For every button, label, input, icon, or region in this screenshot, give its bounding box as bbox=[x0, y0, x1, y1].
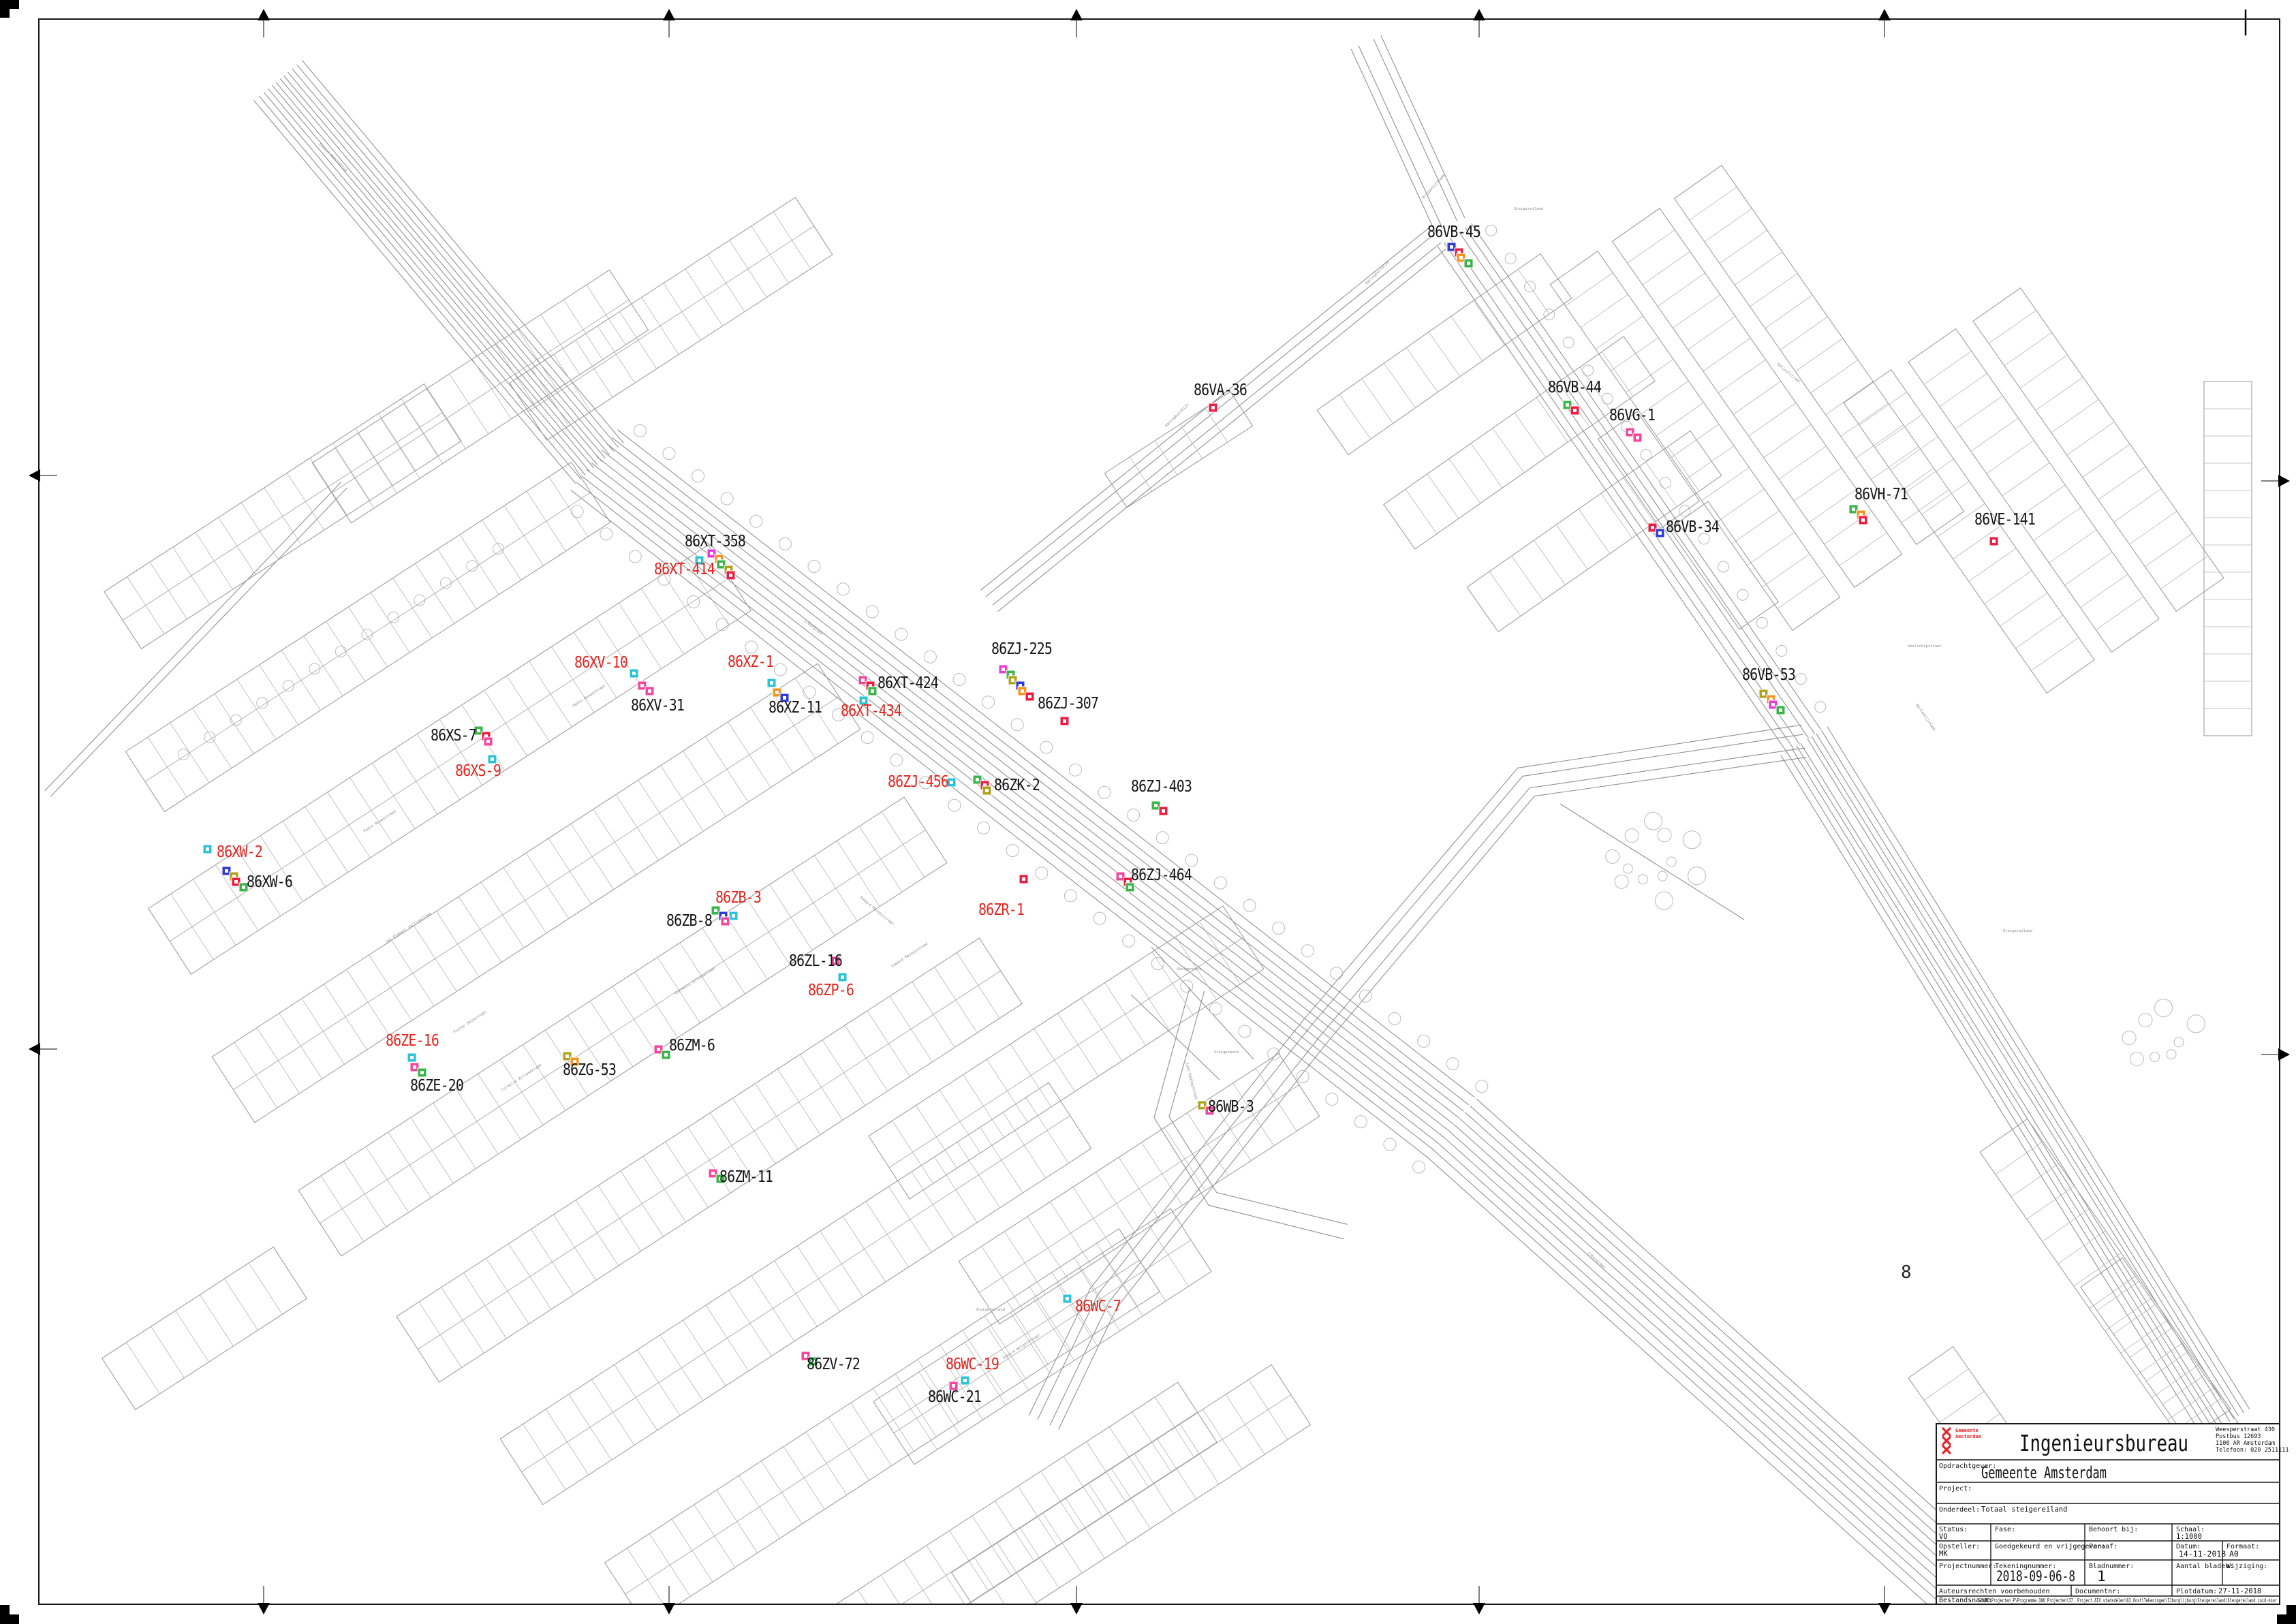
title-block-company: Ingenieursbureau bbox=[2019, 1430, 2188, 1456]
map-canvas: Enneus HeermabrugIJburglaanIJburglaanHar… bbox=[0, 0, 2296, 1624]
inspection-label: 86VB-34 bbox=[1666, 518, 1719, 536]
drawing-sheet: Enneus HeermabrugIJburglaanIJburglaanHar… bbox=[0, 0, 2296, 1624]
marker-square-icon bbox=[838, 973, 847, 982]
formaat-value: A0 bbox=[2229, 1549, 2239, 1559]
marker-square-icon bbox=[1633, 433, 1642, 442]
street-name: Steigereiland bbox=[1514, 207, 1543, 211]
inspection-label: 86XW-6 bbox=[247, 873, 292, 891]
address-line-3: 1100 AR Amsterdam bbox=[2216, 1440, 2275, 1447]
marker-square-icon bbox=[1209, 403, 1217, 412]
marker-square-icon bbox=[1656, 529, 1664, 537]
inspection-label: 86WC-19 bbox=[946, 1356, 999, 1373]
onderdeel-label: Onderdeel: bbox=[1939, 1506, 1980, 1514]
marker-square-icon bbox=[1063, 1294, 1072, 1303]
plotdatum-value: 27-11-2018 bbox=[2218, 1587, 2261, 1595]
inspection-label: 86ZJ-456 bbox=[888, 773, 948, 791]
marker-square-icon bbox=[1570, 406, 1579, 415]
marker-square-icon bbox=[645, 687, 654, 696]
datum-value: 14-11-2018 bbox=[2179, 1549, 2226, 1559]
documentnr-label: Documentnr: bbox=[2075, 1588, 2120, 1595]
street-name: Steigereiland bbox=[976, 1308, 1005, 1312]
marker-square-icon bbox=[767, 678, 776, 687]
inspection-label: 86XT-434 bbox=[841, 702, 901, 720]
status-value: VO bbox=[1939, 1533, 1948, 1541]
inspection-label: 86ZE-20 bbox=[410, 1077, 463, 1095]
projectnummer-label: Projectnummer: bbox=[1939, 1563, 1996, 1570]
marker-square-icon bbox=[1859, 516, 1867, 525]
address-line-2: Postbus 12693 bbox=[2216, 1433, 2261, 1440]
onderdeel-value: Totaal steigereiland bbox=[1981, 1505, 2067, 1514]
inspection-label: 86XT-358 bbox=[685, 533, 745, 550]
marker-square-icon bbox=[1464, 259, 1473, 268]
inspection-label: 86XV-10 bbox=[574, 654, 627, 672]
behoort-bij-label: Behoort bij: bbox=[2089, 1526, 2138, 1533]
marker-square-icon bbox=[961, 1376, 969, 1385]
marker-square-icon bbox=[726, 571, 735, 580]
inspection-label: 86WB-3 bbox=[1208, 1098, 1254, 1116]
marker-square-icon bbox=[418, 1068, 426, 1077]
paraaf-label: Paraaf: bbox=[2089, 1543, 2117, 1550]
wijziging-label: Wijziging: bbox=[2227, 1563, 2267, 1570]
inspection-label: 86ZJ-225 bbox=[991, 640, 1052, 658]
inspection-label: 86VB-45 bbox=[1427, 223, 1480, 241]
inspection-label: 86WC-7 bbox=[1075, 1298, 1121, 1315]
marker-square-icon bbox=[1060, 717, 1069, 725]
tekeningnummer-value: 2018-09-06-8 bbox=[1996, 1568, 2075, 1584]
opdrachtgever-value: Gemeente Amsterdam bbox=[1981, 1463, 2107, 1482]
street-name: Steigereiland bbox=[2003, 929, 2032, 933]
street-name: Smalschipstraat bbox=[1908, 644, 1942, 649]
title-block: Gemeente Amsterdam Ingenieursbureau Wees… bbox=[1936, 1424, 2289, 1604]
inspection-label: 86ZB-3 bbox=[715, 889, 761, 907]
inspection-label: 86ZK-2 bbox=[994, 777, 1040, 794]
inspection-label: 86XS-7 bbox=[431, 727, 476, 745]
inspection-label: 86ZM-6 bbox=[669, 1037, 715, 1055]
opsteller-value: MK bbox=[1939, 1550, 1948, 1558]
inspection-label: 86VH-71 bbox=[1855, 486, 1908, 503]
marker-square-icon bbox=[729, 911, 738, 920]
inspection-label: 86ZL-16 bbox=[789, 952, 842, 970]
auteursrechten-text: Auteursrechten voorbehouden bbox=[1939, 1588, 2050, 1595]
inspection-label: 86XT-424 bbox=[878, 674, 938, 692]
inspection-label: 86XS-9 bbox=[455, 762, 501, 780]
bladnummer-label: Bladnummer: bbox=[2089, 1563, 2134, 1570]
fase-label: Fase: bbox=[1995, 1526, 2015, 1533]
logo-text-line1: Gemeente bbox=[1955, 1428, 1979, 1433]
inspection-label: 86ZE-16 bbox=[386, 1032, 439, 1050]
inspection-label: 86ZJ-464 bbox=[1131, 866, 1192, 884]
marker-square-icon bbox=[1989, 537, 1998, 546]
schaal-value: 1:1000 bbox=[2176, 1533, 2202, 1541]
inspection-label: 86XT-414 bbox=[654, 561, 715, 578]
inspection-label: 86ZG-53 bbox=[563, 1061, 616, 1079]
map-annotation: 8 bbox=[1901, 1262, 1912, 1283]
inspection-label: 86VA-36 bbox=[1194, 381, 1247, 399]
inspection-label: 86VB-53 bbox=[1742, 666, 1795, 684]
marker-square-icon bbox=[630, 669, 638, 678]
inspection-label: 86XZ-11 bbox=[769, 699, 822, 717]
marker-square-icon bbox=[1776, 706, 1785, 715]
marker-square-icon bbox=[982, 786, 991, 795]
inspection-label: 86ZJ-307 bbox=[1038, 695, 1098, 713]
marker-square-icon bbox=[868, 687, 877, 696]
inspection-label: 86XZ-1 bbox=[728, 653, 773, 671]
bestandsnaam-value: G:\RD\Projecten_P\Programma OAK Projecte… bbox=[1979, 1597, 2277, 1604]
inspection-label: 86VB-44 bbox=[1548, 379, 1601, 396]
inspection-label: 86WC-21 bbox=[928, 1388, 981, 1406]
marker-square-icon bbox=[721, 917, 730, 926]
logo-text-line2: Amsterdam bbox=[1955, 1434, 1981, 1439]
plotdatum-label: Plotdatum: bbox=[2176, 1588, 2217, 1595]
inspection-label: 86ZR-1 bbox=[978, 901, 1024, 919]
inspection-label: 86ZV-72 bbox=[807, 1356, 860, 1373]
marker-square-icon bbox=[484, 737, 493, 746]
address-line-4: Telefoon: 020 2511111 bbox=[2216, 1447, 2289, 1454]
street-name: Steigerpark bbox=[1177, 967, 1202, 971]
inspection-label: 86VE-141 bbox=[1974, 511, 2035, 529]
inspection-label: 86XW-2 bbox=[217, 843, 262, 861]
aantal-bladen-label: Aantal bladen: bbox=[2176, 1563, 2233, 1570]
bladnummer-value: 1 bbox=[2097, 1568, 2106, 1584]
inspection-label: 86ZM-11 bbox=[719, 1168, 773, 1186]
inspection-label: 86VG-1 bbox=[1609, 407, 1655, 424]
marker-square-icon bbox=[1159, 807, 1168, 815]
marker-square-icon bbox=[1025, 692, 1034, 701]
project-label: Project: bbox=[1939, 1485, 1972, 1493]
marker-square-icon bbox=[1019, 875, 1028, 884]
inspection-label: 86ZB-8 bbox=[666, 912, 712, 930]
marker-square-icon bbox=[203, 845, 212, 854]
paper bbox=[0, 0, 2296, 1624]
address-line-1: Weesperstraat 430 bbox=[2216, 1426, 2275, 1433]
marker-square-icon bbox=[407, 1053, 416, 1062]
inspection-label: 86ZP-6 bbox=[808, 982, 854, 999]
street-name: Steigerpark bbox=[1214, 1050, 1239, 1055]
inspection-label: 86ZJ-403 bbox=[1131, 778, 1192, 796]
inspection-label: 86XV-31 bbox=[631, 697, 684, 715]
